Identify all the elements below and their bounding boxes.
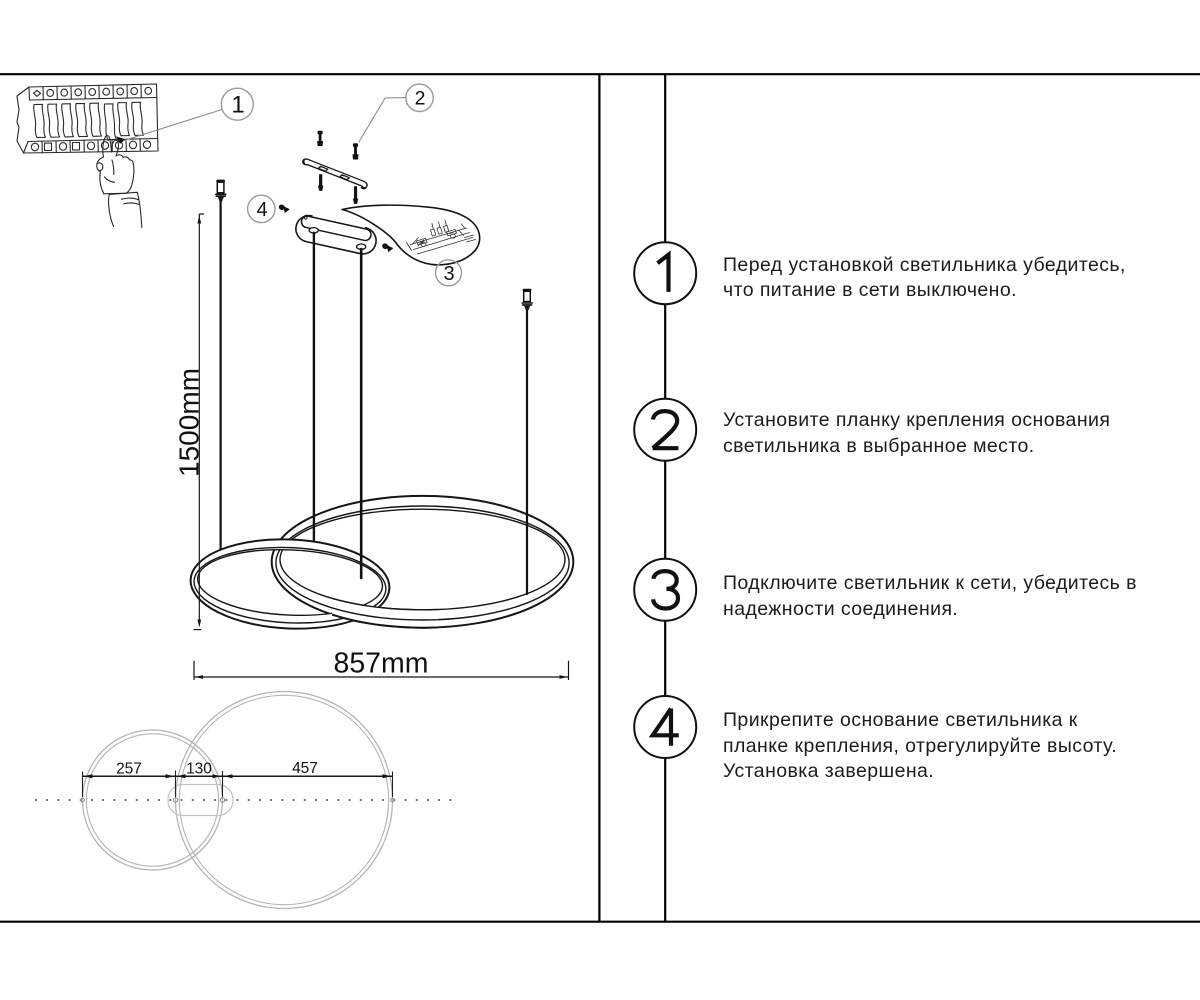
- svg-text:857mm: 857mm: [333, 648, 428, 680]
- svg-text:3: 3: [444, 263, 455, 285]
- svg-text:4: 4: [256, 199, 267, 221]
- svg-text:1: 1: [231, 92, 244, 119]
- svg-text:1500mm: 1500mm: [174, 368, 205, 477]
- svg-text:257: 257: [116, 761, 142, 778]
- svg-text:130: 130: [186, 761, 212, 778]
- svg-text:457: 457: [292, 760, 318, 777]
- svg-text:2: 2: [415, 88, 426, 110]
